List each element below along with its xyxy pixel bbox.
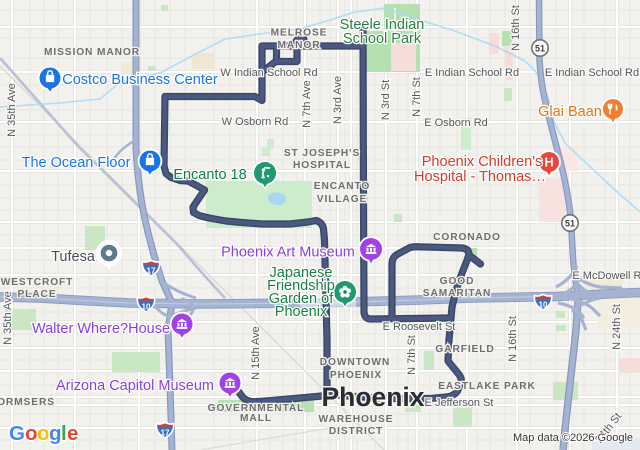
svg-text:N 7th Ave: N 7th Ave	[301, 80, 313, 128]
svg-text:SAMARITAN: SAMARITAN	[423, 288, 491, 299]
svg-text:N 7th St: N 7th St	[406, 335, 418, 375]
svg-text:E Roosevelt St: E Roosevelt St	[383, 321, 456, 333]
svg-text:G: G	[9, 422, 25, 445]
svg-text:GARFIELD: GARFIELD	[435, 344, 494, 355]
svg-text:N 35th Ave: N 35th Ave	[2, 291, 14, 345]
svg-text:10: 10	[141, 302, 151, 311]
svg-text:Map data ©2026 Google: Map data ©2026 Google	[513, 432, 633, 444]
svg-text:N 16th St: N 16th St	[510, 5, 522, 51]
svg-text:EASTLAKE PARK: EASTLAKE PARK	[438, 381, 536, 392]
svg-text:W Indian School Rd: W Indian School Rd	[220, 67, 317, 79]
svg-text:Glai Baan: Glai Baan	[538, 104, 602, 120]
svg-text:E Indian School Rd: E Indian School Rd	[545, 67, 639, 79]
svg-text:Arizona Capitol Museum: Arizona Capitol Museum	[56, 378, 214, 394]
svg-text:The Ocean Floor: The Ocean Floor	[22, 155, 131, 171]
svg-text:N 24th St: N 24th St	[611, 304, 623, 350]
svg-text:N 35th Ave: N 35th Ave	[6, 83, 18, 137]
svg-text:17: 17	[160, 428, 170, 437]
svg-text:PHOENIX: PHOENIX	[330, 370, 382, 381]
svg-text:ENCANTO: ENCANTO	[314, 181, 371, 192]
svg-text:MALL: MALL	[240, 413, 272, 424]
svg-text:DISTRICT: DISTRICT	[329, 426, 383, 437]
svg-text:Hospital - Thomas…: Hospital - Thomas…	[414, 169, 546, 185]
svg-text:VILLAGE: VILLAGE	[317, 194, 367, 205]
svg-text:ST JOSEPH'S: ST JOSEPH'S	[284, 148, 360, 159]
svg-text:DOWNTOWN: DOWNTOWN	[320, 357, 390, 368]
svg-text:School Park: School Park	[343, 31, 422, 47]
svg-text:17: 17	[146, 266, 156, 275]
svg-text:g: g	[49, 422, 62, 445]
svg-text:ORMSERS: ORMSERS	[0, 397, 55, 408]
svg-text:Phoenix Children's: Phoenix Children's	[422, 154, 542, 170]
svg-text:Walter Where?House: Walter Where?House	[32, 321, 170, 337]
svg-text:o: o	[25, 422, 38, 445]
svg-text:N 16th St: N 16th St	[507, 316, 519, 362]
svg-text:MISSION MANOR: MISSION MANOR	[44, 47, 140, 58]
svg-text:E Indian School Rd: E Indian School Rd	[425, 67, 519, 79]
svg-text:H: H	[544, 156, 553, 170]
svg-text:51: 51	[535, 43, 545, 53]
svg-text:E Osborn Rd: E Osborn Rd	[424, 117, 488, 129]
svg-text:Costco Business Center: Costco Business Center	[62, 72, 218, 88]
svg-text:Encanto 18: Encanto 18	[173, 167, 246, 183]
svg-text:N 3rd St: N 3rd St	[380, 80, 392, 120]
svg-text:GOOD: GOOD	[440, 276, 475, 287]
svg-text:e: e	[67, 422, 78, 445]
svg-text:l: l	[61, 422, 67, 445]
svg-text:HOSPITAL: HOSPITAL	[293, 160, 351, 171]
svg-text:N 15th Ave: N 15th Ave	[250, 326, 262, 380]
svg-text:MANOR: MANOR	[278, 40, 321, 51]
svg-text:Phoenix Art Museum: Phoenix Art Museum	[221, 245, 355, 261]
svg-text:E Jefferson St: E Jefferson St	[425, 397, 494, 409]
svg-text:PLACE: PLACE	[17, 289, 56, 300]
svg-text:WAREHOUSE: WAREHOUSE	[319, 414, 394, 425]
svg-text:WESTCROFT: WESTCROFT	[1, 277, 74, 288]
svg-text:N 7th St: N 7th St	[411, 77, 423, 117]
svg-text:E McDowell Rd: E McDowell Rd	[572, 270, 640, 282]
svg-text:Phoenix: Phoenix	[321, 382, 424, 412]
svg-text:Phoenix: Phoenix	[275, 304, 328, 320]
svg-text:N 3rd Ave: N 3rd Ave	[332, 76, 344, 124]
svg-text:CORONADO: CORONADO	[433, 232, 501, 243]
svg-text:10: 10	[538, 300, 548, 309]
svg-text:W Osborn Rd: W Osborn Rd	[222, 116, 289, 128]
svg-text:Tufesa: Tufesa	[51, 249, 96, 265]
svg-text:51: 51	[565, 218, 575, 228]
svg-text:MELROSE: MELROSE	[271, 28, 328, 39]
svg-text:o: o	[37, 422, 50, 445]
